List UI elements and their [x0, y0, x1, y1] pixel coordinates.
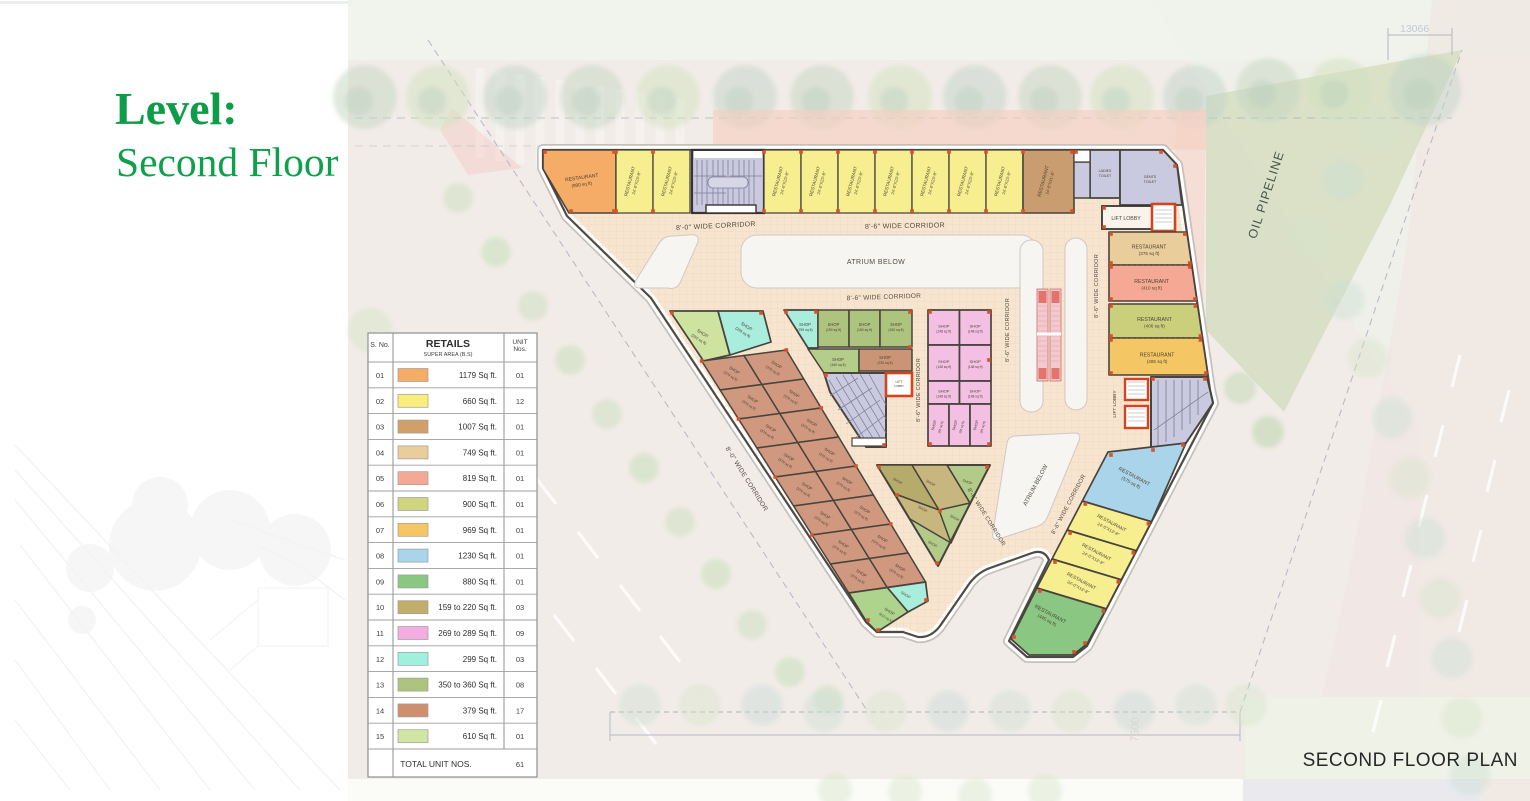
svg-text:Second Floor: Second Floor	[116, 139, 339, 185]
svg-text:Level:: Level:	[115, 83, 238, 134]
